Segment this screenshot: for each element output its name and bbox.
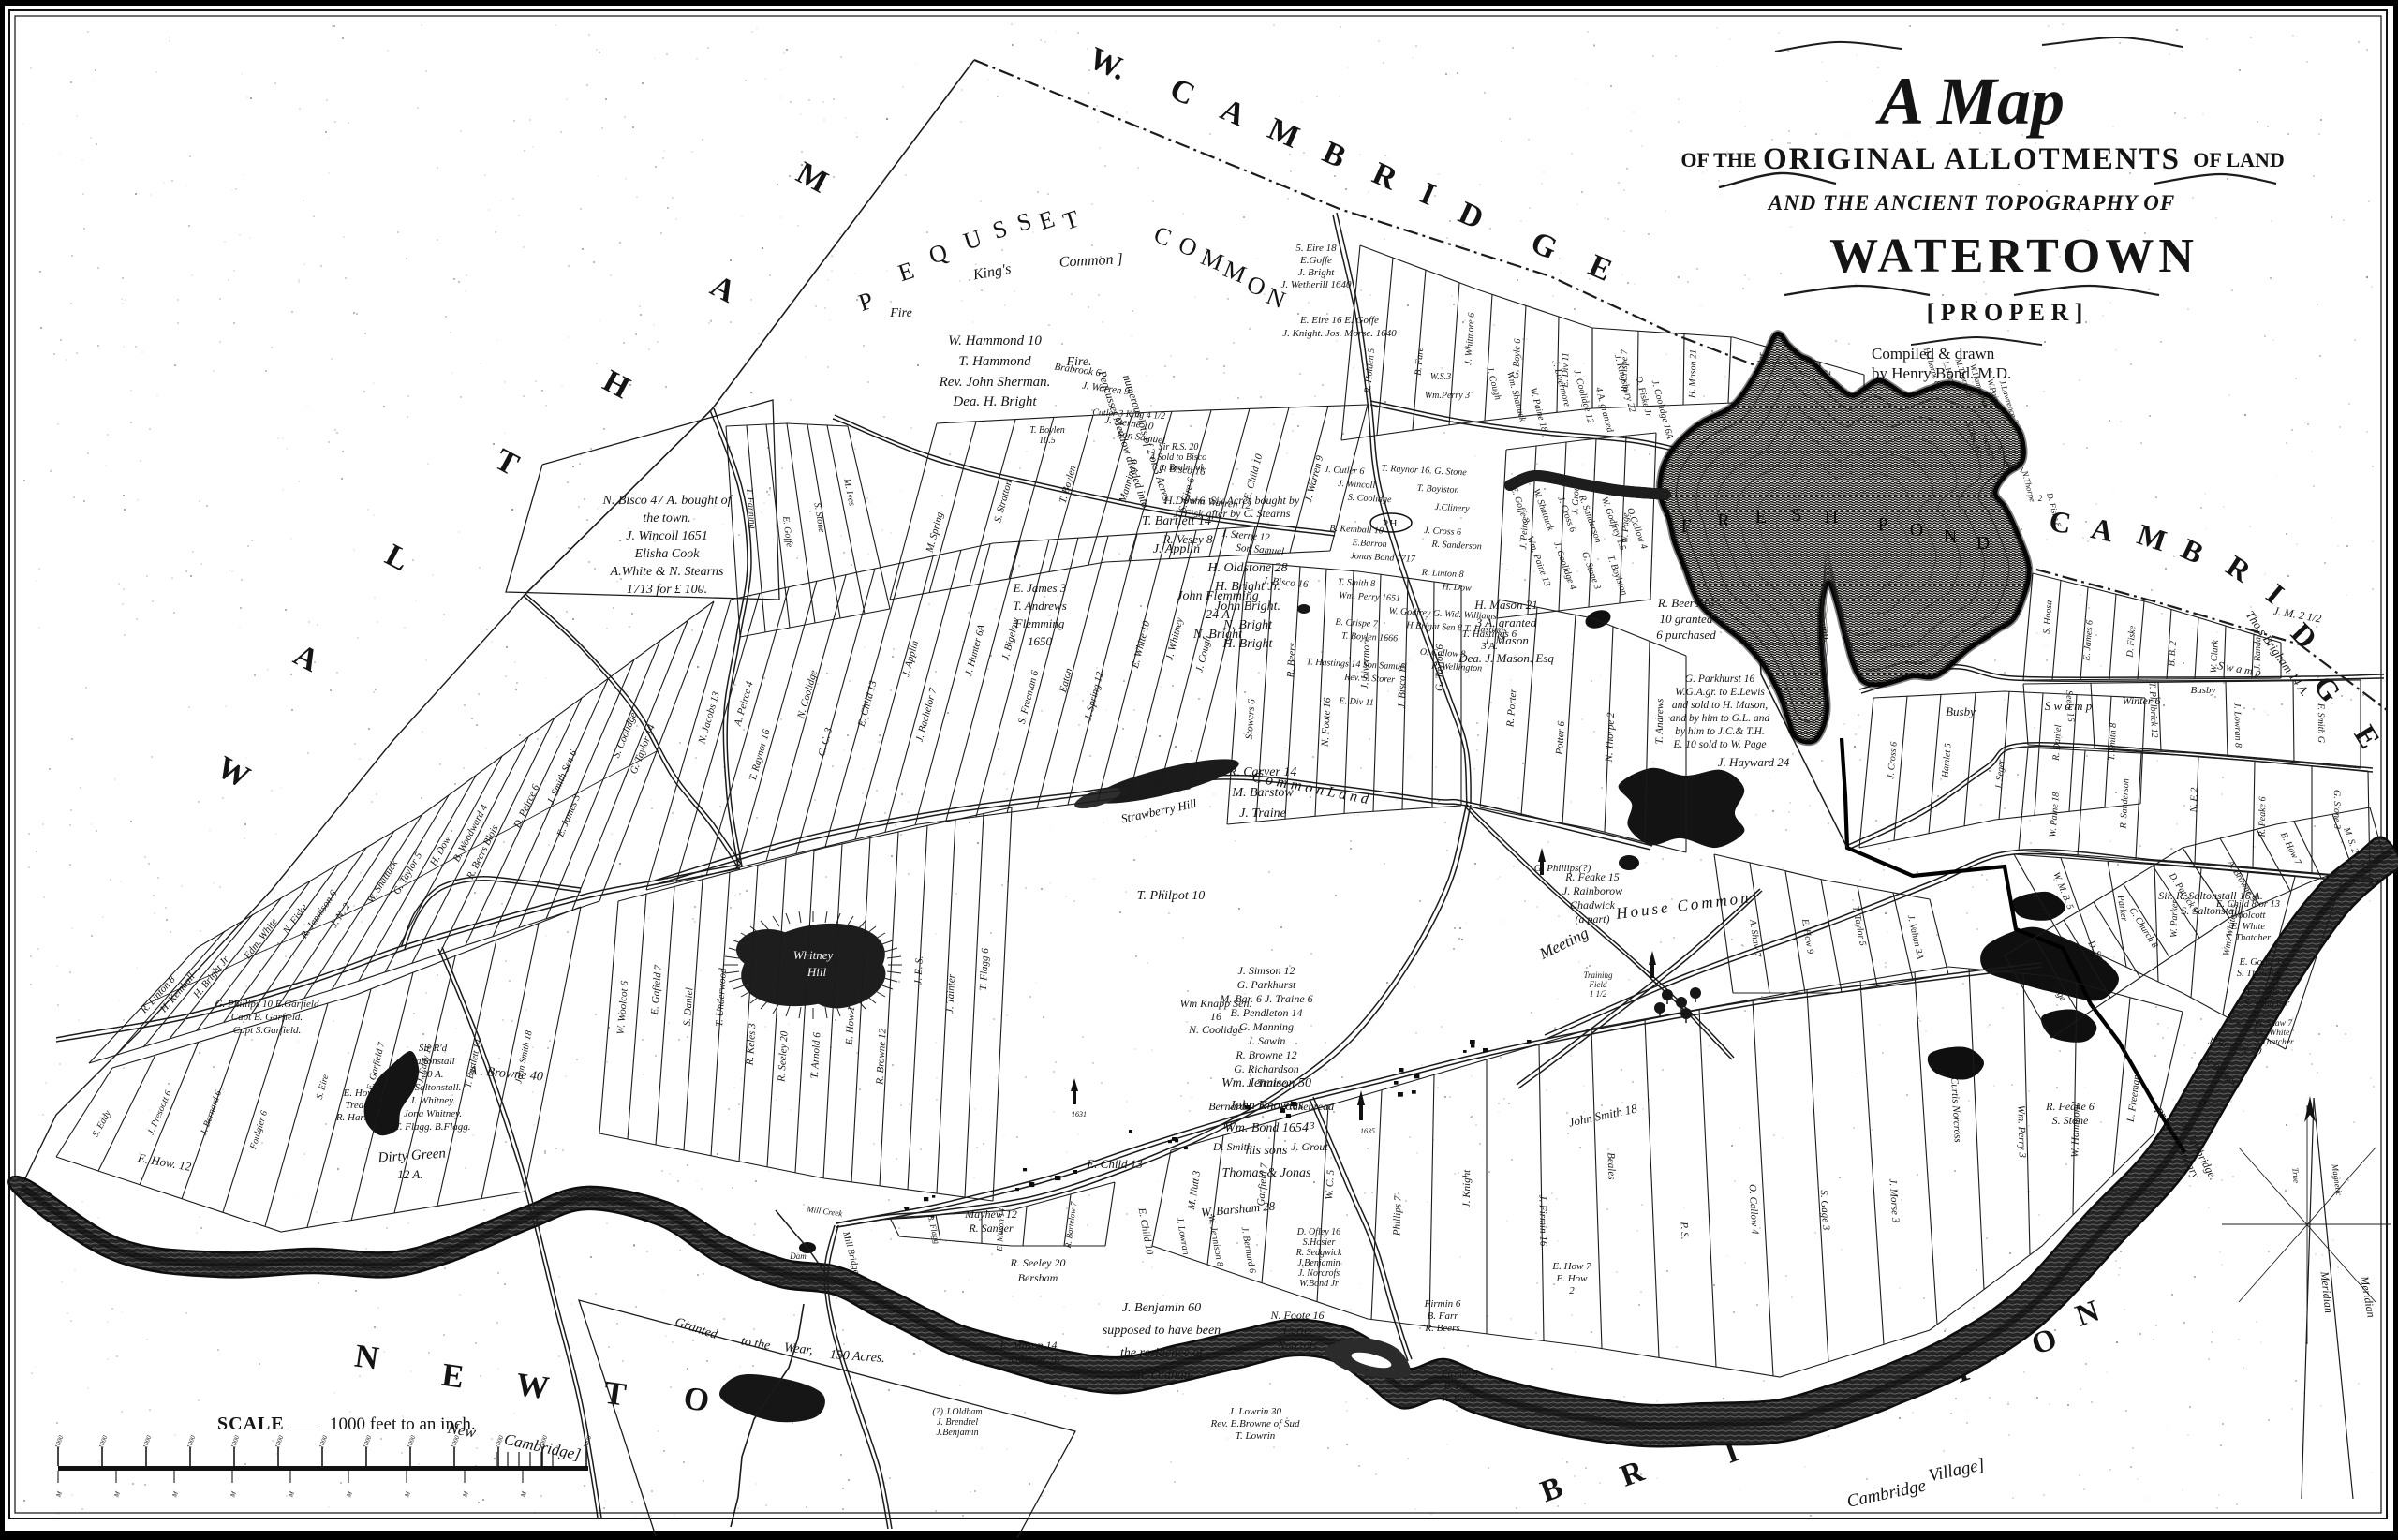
svg-text:E. Goffe 9: E. Goffe 9	[2239, 957, 2281, 968]
svg-text:Treadway: Treadway	[346, 1100, 386, 1111]
svg-text:20 A.: 20 A.	[422, 1069, 443, 1080]
svg-text:Hill: Hill	[807, 965, 827, 979]
svg-text:P. S.: P. S.	[1679, 1221, 1691, 1240]
svg-text:E. How 1: E. How 1	[844, 1006, 857, 1046]
svg-text:H: H	[1825, 507, 1838, 527]
svg-text:OF LAND: OF LAND	[2193, 148, 2285, 171]
svg-text:Whitney: Whitney	[793, 948, 834, 962]
svg-text:Mayhew 12: Mayhew 12	[964, 1207, 1017, 1221]
svg-text:J.Benjamin: J.Benjamin	[936, 1428, 978, 1438]
svg-text:D. Smith: D. Smith	[1212, 1140, 1252, 1153]
svg-text:N. Foote 16: N. Foote 16	[1270, 1309, 1325, 1322]
svg-text:J. Cutler 6: J. Cutler 6	[1325, 465, 1365, 477]
svg-text:R. Peake 6: R. Peake 6	[2257, 796, 2269, 837]
svg-text:E. James 3: E. James 3	[1013, 581, 1067, 595]
svg-text:2: 2	[1569, 1285, 1575, 1296]
svg-text:Rev. John Sherman.: Rev. John Sherman.	[939, 375, 1051, 390]
svg-text:B. Farr: B. Farr	[1428, 1310, 1459, 1322]
svg-text:J.Clinery: J.Clinery	[1434, 502, 1470, 514]
svg-text:D: D	[1976, 533, 1990, 554]
svg-text:Phillips 7: Phillips 7	[1391, 1195, 1403, 1236]
svg-text:W.S.3: W.S.3	[1430, 372, 1451, 382]
svg-text:R. Beers 16: R. Beers 16	[1657, 596, 1715, 610]
svg-text:Fire: Fire	[889, 306, 912, 320]
svg-text:1635: 1635	[1360, 1127, 1375, 1135]
svg-text:E. Goffe 9: E. Goffe 9	[2246, 987, 2288, 998]
svg-text:J. Simson 12: J. Simson 12	[1238, 964, 1295, 977]
svg-text:J. Wetherill 1640: J. Wetherill 1640	[1280, 279, 1352, 290]
svg-text:Jona Whitney.: Jona Whitney.	[404, 1108, 462, 1119]
svg-text:E. Div 11: E. Div 11	[1338, 696, 1374, 708]
svg-text:R. Beers: R. Beers	[1285, 643, 1298, 679]
svg-text:Saltonstall: Saltonstall	[410, 1056, 454, 1067]
svg-text:WATERTOWN: WATERTOWN	[1829, 230, 2198, 283]
svg-text:E. How: E. How	[1556, 1273, 1589, 1284]
svg-text:R. Sanger: R. Sanger	[968, 1222, 1014, 1235]
svg-text:R. Seeley 20: R. Seeley 20	[1010, 1256, 1066, 1269]
svg-text:H. Mason 21: H. Mason 21	[1473, 598, 1538, 612]
svg-text:J. Norcrofs: J. Norcrofs	[1298, 1268, 1340, 1279]
svg-text:J. Brendrel: J. Brendrel	[937, 1417, 978, 1428]
svg-text:W.Bond Jr: W.Bond Jr	[1299, 1279, 1339, 1289]
svg-text:N. Thorpe 2: N. Thorpe 2	[1604, 712, 1617, 763]
svg-text:13: 13	[1305, 1120, 1316, 1132]
svg-text:the residence of: the residence of	[1120, 1346, 1205, 1360]
svg-text:G. Parkhurst: G. Parkhurst	[1237, 978, 1296, 991]
svg-text:J. Traine: J. Traine	[1247, 1076, 1287, 1089]
svg-text:(a part): (a part)	[1576, 912, 1610, 925]
svg-text:Mr. Oldham: Mr. Oldham	[1129, 1369, 1193, 1383]
svg-text:(?) J.Oldham: (?) J.Oldham	[932, 1407, 982, 1417]
svg-text:and by him to G.L. and: and by him to G.L. and	[1670, 713, 1770, 724]
svg-text:G. Phillips 10 E.Garfield: G. Phillips 10 E.Garfield	[215, 999, 319, 1010]
svg-text:H. Bright: H. Bright	[1222, 637, 1274, 651]
svg-text:10.5: 10.5	[1039, 436, 1056, 446]
svg-text:13: 13	[1222, 1120, 1234, 1132]
svg-text:D. Ofley 16: D. Ofley 16	[1296, 1227, 1340, 1237]
svg-text:Common ]: Common ]	[1058, 251, 1123, 271]
svg-text:J. Traine: J. Traine	[1239, 807, 1286, 821]
svg-text:G. Manning: G. Manning	[1239, 1020, 1294, 1033]
svg-text:N. Coolidge: N. Coolidge	[1188, 1023, 1244, 1036]
svg-text:E.Barron: E.Barron	[1351, 538, 1387, 550]
svg-text:F. Smith G: F. Smith G	[2316, 703, 2326, 743]
svg-text:T. Boylston: T. Boylston	[1416, 483, 1458, 496]
svg-text:5. Eire 18: 5. Eire 18	[1295, 243, 1337, 254]
svg-text:J.Benjamin: J.Benjamin	[1297, 1258, 1340, 1268]
svg-text:6 to Brabrook: 6 to Brabrook	[1152, 463, 1205, 473]
svg-text:R. Feake 6: R. Feake 6	[2045, 1100, 2095, 1113]
svg-text:F: F	[1680, 516, 1691, 537]
svg-text:1 1/2: 1 1/2	[1590, 989, 1607, 999]
svg-text:J. Lowran 8: J. Lowran 8	[2231, 703, 2243, 748]
svg-text:W: W	[514, 1366, 552, 1406]
svg-text:1631: 1631	[1072, 1110, 1087, 1118]
svg-text:N: N	[1944, 526, 1957, 547]
svg-text:J. Whitney.: J. Whitney.	[410, 1095, 456, 1106]
svg-text:Dam: Dam	[789, 1251, 807, 1261]
svg-text:E.Goffe: E.Goffe	[1299, 255, 1332, 266]
svg-text:4 Sold to Bisco: 4 Sold to Bisco	[1150, 452, 1206, 463]
svg-text:S. Stone: S. Stone	[2052, 1114, 2089, 1127]
svg-text:Firmin 6: Firmin 6	[1441, 1369, 1478, 1380]
svg-text:12 A.: 12 A.	[397, 1167, 422, 1181]
svg-text:J. Tainter: J. Tainter	[944, 973, 957, 1014]
svg-text:E: E	[1755, 507, 1767, 527]
svg-text:3 A.: 3 A.	[1480, 641, 1498, 652]
svg-text:T. Flagg. B.Flagg.: T. Flagg. B.Flagg.	[394, 1121, 470, 1133]
svg-text:Beales: Beales	[1606, 1152, 1618, 1180]
svg-text:H. Oldstone 28: H. Oldstone 28	[1206, 561, 1287, 575]
svg-text:by him to J.C.& T.H.: by him to J.C.& T.H.	[1675, 726, 1765, 737]
svg-text:SCALE: SCALE	[217, 1414, 285, 1434]
svg-text:True: True	[2290, 1167, 2301, 1183]
svg-text:B. Farr: B. Farr	[1444, 1381, 1476, 1392]
svg-text:Wm. Bond 1654: Wm. Bond 1654	[1224, 1121, 1309, 1135]
svg-text:R. Sedgwick: R. Sedgwick	[1295, 1248, 1342, 1258]
svg-text:Elisha Cook: Elisha Cook	[634, 547, 701, 561]
svg-text:Sir R.S. 20: Sir R.S. 20	[1159, 442, 1199, 452]
svg-text:R: R	[1717, 511, 1730, 531]
svg-text:1713 for £ 100.: 1713 for £ 100.	[627, 583, 707, 597]
svg-text:J. Knight: J. Knight	[1461, 1169, 1473, 1207]
svg-text:Norcrofs: Norcrofs	[1277, 1339, 1317, 1352]
svg-text:Chadwick: Chadwick	[1570, 898, 1616, 911]
svg-text:S: S	[1791, 505, 1801, 526]
svg-text:____: ____	[289, 1415, 321, 1431]
svg-text:N. F. 2: N. F. 2	[2188, 787, 2199, 813]
svg-text:E. Child 13: E. Child 13	[1086, 1157, 1143, 1171]
svg-text:G. Stone 3: G. Stone 3	[2331, 790, 2342, 829]
svg-text:G. Parkhurst 16: G. Parkhurst 16	[1685, 674, 1755, 685]
svg-text:S. Saltonstall.: S. Saltonstall.	[405, 1082, 462, 1093]
svg-text:N. Foote 16: N. Foote 16	[1320, 697, 1333, 748]
svg-text:H. Dow: H. Dow	[1441, 582, 1472, 594]
svg-text:N: N	[352, 1338, 380, 1377]
svg-text:P: P	[1877, 514, 1887, 535]
svg-text:T. Boylen: T. Boylen	[1029, 425, 1065, 436]
svg-text:S.Hosier: S.Hosier	[1303, 1237, 1336, 1248]
svg-text:J. Cross 6: J. Cross 6	[1424, 526, 1461, 538]
svg-text:O: O	[1910, 520, 1923, 540]
svg-text:H. Mason 21: H. Mason 21	[1687, 349, 1698, 399]
svg-text:T. Hastings 6: T. Hastings 6	[1462, 629, 1517, 640]
svg-text:W. C. 5: W. C. 5	[1324, 1169, 1337, 1200]
svg-text:Winter 6: Winter 6	[2123, 694, 2161, 707]
svg-text:Capt S.Garfield.: Capt S.Garfield.	[233, 1025, 301, 1036]
svg-text:OF THE: OF THE	[1680, 148, 1756, 171]
svg-text:J. Bright: J. Bright	[1298, 267, 1335, 278]
svg-text:T. Smith 8: T. Smith 8	[1338, 577, 1376, 589]
svg-text:J. Norcroft 26: J. Norcroft 26	[998, 1354, 1060, 1367]
svg-text:A.White & N. Stearns: A.White & N. Stearns	[610, 565, 724, 579]
svg-text:R. Beers: R. Beers	[1441, 1393, 1476, 1404]
svg-text:Dea. H. Bright: Dea. H. Bright	[952, 394, 1037, 409]
svg-text:S. Thatcher: S. Thatcher	[2237, 969, 2283, 979]
svg-text:T. Hammond: T. Hammond	[958, 354, 1031, 369]
svg-text:G. Phillips(?): G. Phillips(?)	[1534, 863, 1591, 874]
svg-text:S. Thatcher: S. Thatcher	[2244, 999, 2290, 1009]
svg-text:Firmin 6: Firmin 6	[1424, 1298, 1461, 1310]
svg-text:J. Rainborow: J. Rainborow	[1562, 884, 1622, 897]
svg-text:1000 feet to an inch.: 1000 feet to an inch.	[330, 1414, 476, 1434]
svg-text:J. Wincoll 1651: J. Wincoll 1651	[626, 529, 708, 543]
svg-text:R. Vesey 8: R. Vesey 8	[1162, 532, 1213, 546]
svg-text:the town.: the town.	[643, 511, 690, 526]
svg-text:W. Hammond 10: W. Hammond 10	[948, 333, 1042, 348]
svg-text:ORIGINAL ALLOTMENTS: ORIGINAL ALLOTMENTS	[1763, 142, 2181, 176]
svg-text:J. Benjamin 60: J. Benjamin 60	[1122, 1301, 1201, 1315]
svg-text:Sir R'd: Sir R'd	[419, 1043, 448, 1054]
svg-text:E. Eire 16 E. Goffe: E. Eire 16 E. Goffe	[1299, 315, 1379, 326]
svg-text:Capt B. Garfield.: Capt B. Garfield.	[231, 1012, 303, 1023]
svg-text:E. 10 sold to W. Page: E. 10 sold to W. Page	[1673, 739, 1767, 750]
svg-text:J. Firmin 16: J. Firmin 16	[1537, 1194, 1549, 1246]
svg-text:J. Hayward 24: J. Hayward 24	[1718, 755, 1790, 769]
svg-text:E. How 7: E. How 7	[1551, 1261, 1591, 1272]
svg-text:E. Mason 14: E. Mason 14	[999, 1339, 1058, 1352]
svg-text:N. Bright: N. Bright	[1222, 618, 1273, 632]
svg-text:J. Knight. Jos. Morse. 1640: J. Knight. Jos. Morse. 1640	[1282, 328, 1397, 339]
svg-text:Wm. Perry 3: Wm. Perry 3	[2015, 1105, 2028, 1159]
svg-text:J. E. S.: J. E. S.	[912, 955, 925, 985]
svg-text:Flemming: Flemming	[1014, 616, 1065, 630]
svg-text:Field: Field	[1589, 980, 1607, 989]
svg-text:T. Lowrin: T. Lowrin	[1236, 1430, 1276, 1442]
svg-text:Bersham: Bersham	[1018, 1271, 1058, 1284]
svg-text:R. Browne 12: R. Browne 12	[1235, 1048, 1296, 1061]
svg-text:R. Beers: R. Beers	[1424, 1323, 1459, 1334]
svg-text:Training: Training	[1583, 970, 1613, 980]
svg-text:Wm Knapp Sen.: Wm Knapp Sen.	[1180, 997, 1252, 1010]
svg-text:Wm.Perry 3: Wm.Perry 3	[1425, 391, 1470, 401]
svg-text:J. Sawin: J. Sawin	[1248, 1034, 1286, 1047]
svg-text:Sir. R. Saltonstall 16 A.: Sir. R. Saltonstall 16 A.	[2158, 889, 2262, 902]
svg-text:John Bright.: John Bright.	[1215, 600, 1280, 614]
svg-text:T. Philpot 10: T. Philpot 10	[1137, 889, 1205, 903]
svg-text:J. Wincoll: J. Wincoll	[1338, 479, 1376, 491]
svg-text:10 granted: 10 granted	[1660, 612, 1713, 626]
svg-text:E. White: E. White	[2258, 1029, 2290, 1038]
svg-text:N. Bisco 47 A. bought of: N. Bisco 47 A. bought of	[601, 494, 733, 508]
svg-text:O: O	[681, 1379, 711, 1418]
svg-text:S. Gage 3: S. Gage 3	[1818, 1190, 1832, 1231]
svg-text:Curtis: Curtis	[1283, 1324, 1311, 1337]
svg-text:R. Harrington: R. Harrington	[335, 1112, 395, 1123]
svg-text:J. Lowrin 30: J. Lowrin 30	[1229, 1406, 1281, 1417]
svg-text:[ P R O P E R ]: [ P R O P E R ]	[1927, 299, 2083, 326]
svg-text:Thomas & Jonas: Thomas & Jonas	[1222, 1166, 1311, 1180]
svg-text:T. Flagg 6: T. Flagg 6	[978, 947, 991, 990]
svg-text:P.H.: P.H.	[1383, 518, 1400, 529]
svg-text:A. Shaw 7: A. Shaw 7	[2256, 1019, 2294, 1029]
svg-text:Busby: Busby	[2191, 685, 2216, 696]
svg-text:supposed to have been: supposed to have been	[1103, 1324, 1221, 1338]
svg-text:Busby: Busby	[1946, 704, 1976, 718]
svg-text:S. Thatcher: S. Thatcher	[2226, 933, 2272, 943]
svg-text:Potter 6: Potter 6	[1554, 720, 1567, 756]
svg-text:B. B. 2: B. B. 2	[2167, 641, 2179, 667]
svg-text:T. Smith 8: T. Smith 8	[2107, 723, 2119, 762]
svg-text:A Map: A Map	[1875, 64, 2065, 139]
svg-text:J. Grout: J. Grout	[1291, 1140, 1328, 1153]
svg-text:2: 2	[2038, 494, 2043, 503]
svg-text:6 purchased: 6 purchased	[1656, 628, 1716, 642]
svg-text:T. Andrews: T. Andrews	[1654, 699, 1666, 745]
svg-text:S. Saltonstall: S. Saltonstall	[2181, 904, 2241, 917]
svg-text:Bernard: Bernard	[1208, 1100, 1247, 1113]
svg-text:G. Richardson: G. Richardson	[1234, 1062, 1299, 1075]
svg-text:T. Andrews: T. Andrews	[1013, 599, 1067, 613]
svg-text:Rev. E.Browne of Sud: Rev. E.Browne of Sud	[1209, 1418, 1300, 1429]
svg-text:1650: 1650	[1028, 634, 1053, 648]
svg-text:16: 16	[1210, 1010, 1221, 1023]
svg-text:and sold to H. Mason,: and sold to H. Mason,	[1672, 700, 1768, 711]
svg-text:AND THE ANCIENT TOPOGRAPHY OF: AND THE ANCIENT TOPOGRAPHY OF	[1767, 191, 2176, 215]
svg-text:W.G.A.gr. to E.Lewis: W.G.A.gr. to E.Lewis	[1675, 687, 1765, 698]
svg-text:S w a m p: S w a m p	[2045, 699, 2093, 713]
svg-text:E. How 12: E. How 12	[343, 1088, 388, 1099]
svg-text:E. White: E. White	[2230, 922, 2265, 932]
